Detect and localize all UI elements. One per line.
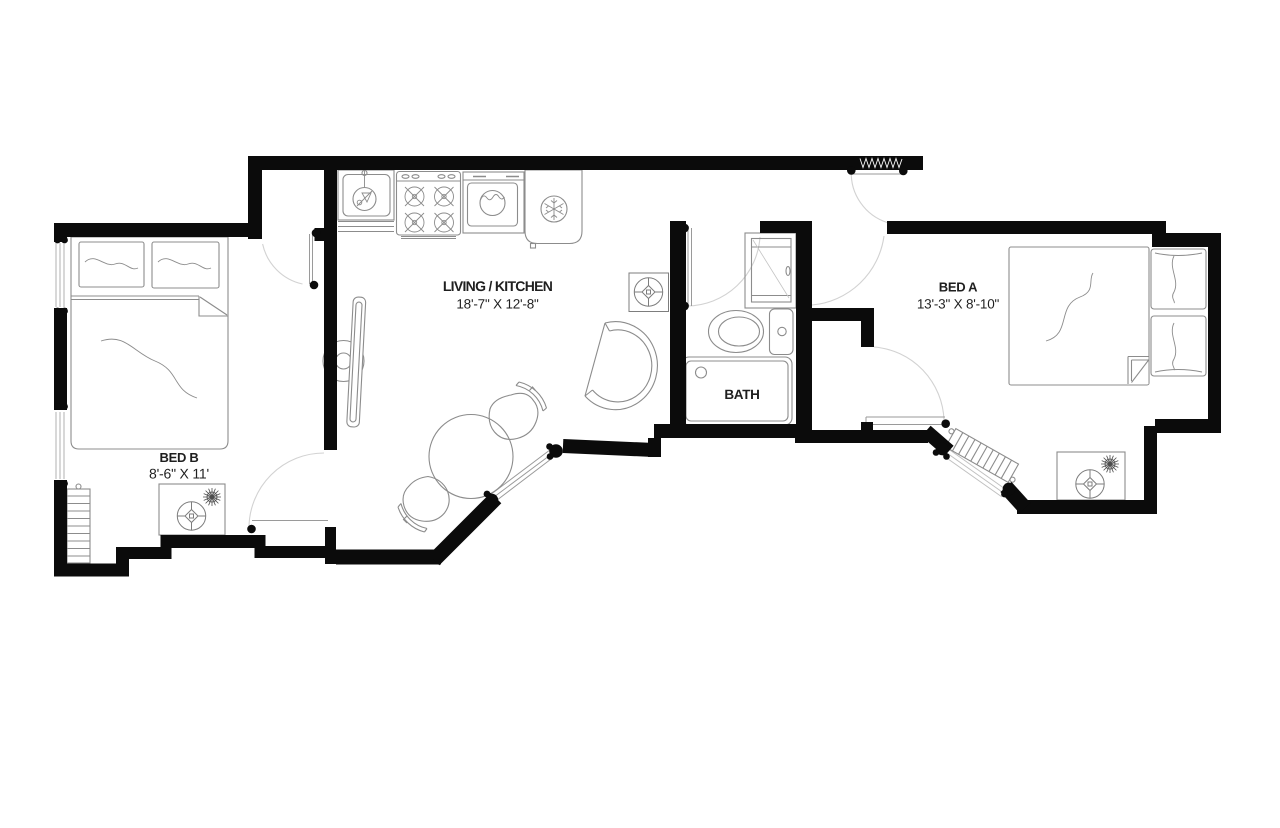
svg-text:BATH: BATH	[724, 387, 759, 402]
svg-text:18'-7" X 12'-8": 18'-7" X 12'-8"	[456, 297, 539, 312]
svg-text:BED A: BED A	[939, 280, 978, 295]
svg-text:BED B: BED B	[160, 450, 199, 465]
svg-text:8'-6" X 11': 8'-6" X 11'	[149, 466, 209, 482]
svg-text:LIVING / KITCHEN: LIVING / KITCHEN	[443, 278, 553, 294]
svg-text:13'-3" X 8'-10": 13'-3" X 8'-10"	[917, 297, 1000, 312]
